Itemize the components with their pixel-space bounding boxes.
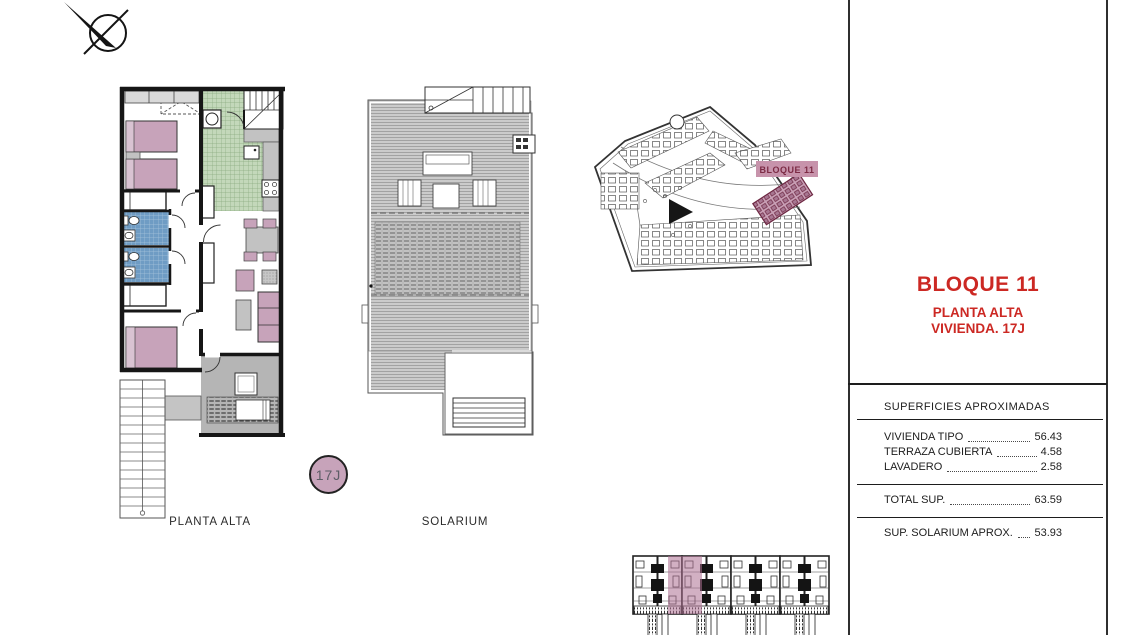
- block-subtitle-line1: PLANTA ALTA: [850, 305, 1106, 321]
- lower-roof: [445, 353, 532, 434]
- table-row-lavadero: LAVADERO 2.58: [857, 461, 1103, 474]
- floor-plan-drawing: [95, 80, 320, 535]
- solarium-label: SOLARIUM: [375, 516, 535, 528]
- block-title: BLOQUE 11: [850, 273, 1106, 297]
- row-label: SUP. SOLARIUM APROX.: [884, 527, 1013, 540]
- row-label: TOTAL SUP.: [884, 494, 945, 507]
- block-subtitle: PLANTA ALTA VIVIENDA. 17J: [850, 305, 1106, 337]
- row-value: 4.58: [1041, 446, 1062, 459]
- table-row-total: TOTAL SUP. 63.59: [857, 494, 1103, 507]
- site-block-label: BLOQUE 11: [759, 165, 814, 175]
- table-row-vivienda: VIVIENDA TIPO 56.43: [857, 431, 1103, 444]
- dot-leader: [950, 504, 1030, 505]
- floor-plan-label: PLANTA ALTA: [130, 516, 290, 528]
- rule: [857, 419, 1103, 420]
- solarium-stair: [425, 87, 530, 113]
- row-label: TERRAZA CUBIERTA: [884, 446, 992, 459]
- drawing-sheet: BLOQUE 11: [0, 0, 1130, 635]
- row-value: 53.93: [1034, 527, 1062, 540]
- table-row-terraza: TERRAZA CUBIERTA 4.58: [857, 446, 1103, 459]
- unit-badge: 17J: [309, 455, 348, 494]
- dot-leader: [968, 441, 1030, 442]
- dot-leader: [947, 471, 1036, 472]
- row-label: LAVADERO: [884, 461, 942, 474]
- highlighted-unit-overlay: [668, 556, 702, 614]
- dot-leader: [997, 456, 1036, 457]
- dot-leader: [1018, 537, 1031, 538]
- north-arrow-icon: [58, 0, 188, 75]
- block-strip-drawing: [630, 552, 835, 635]
- rule: [857, 517, 1103, 518]
- rule: [857, 484, 1103, 485]
- solarium-drawing: [355, 80, 545, 535]
- entry-stair: [244, 89, 283, 129]
- external-stair: [120, 380, 201, 518]
- site-plan-drawing: BLOQUE 11: [585, 95, 830, 290]
- row-value: 2.58: [1041, 461, 1062, 474]
- row-value: 63.59: [1034, 494, 1062, 507]
- block-subtitle-line2: VIVIENDA. 17J: [850, 321, 1106, 337]
- ac-unit: [513, 135, 535, 153]
- surfaces-table: SUPERFICIES APROXIMADAS VIVIENDA TIPO 56…: [848, 383, 1107, 550]
- table-row-solarium: SUP. SOLARIUM APROX. 53.93: [857, 527, 1103, 540]
- row-label: VIVIENDA TIPO: [884, 431, 963, 444]
- row-value: 56.43: [1034, 431, 1062, 444]
- surfaces-table-header: SUPERFICIES APROXIMADAS: [857, 401, 1103, 413]
